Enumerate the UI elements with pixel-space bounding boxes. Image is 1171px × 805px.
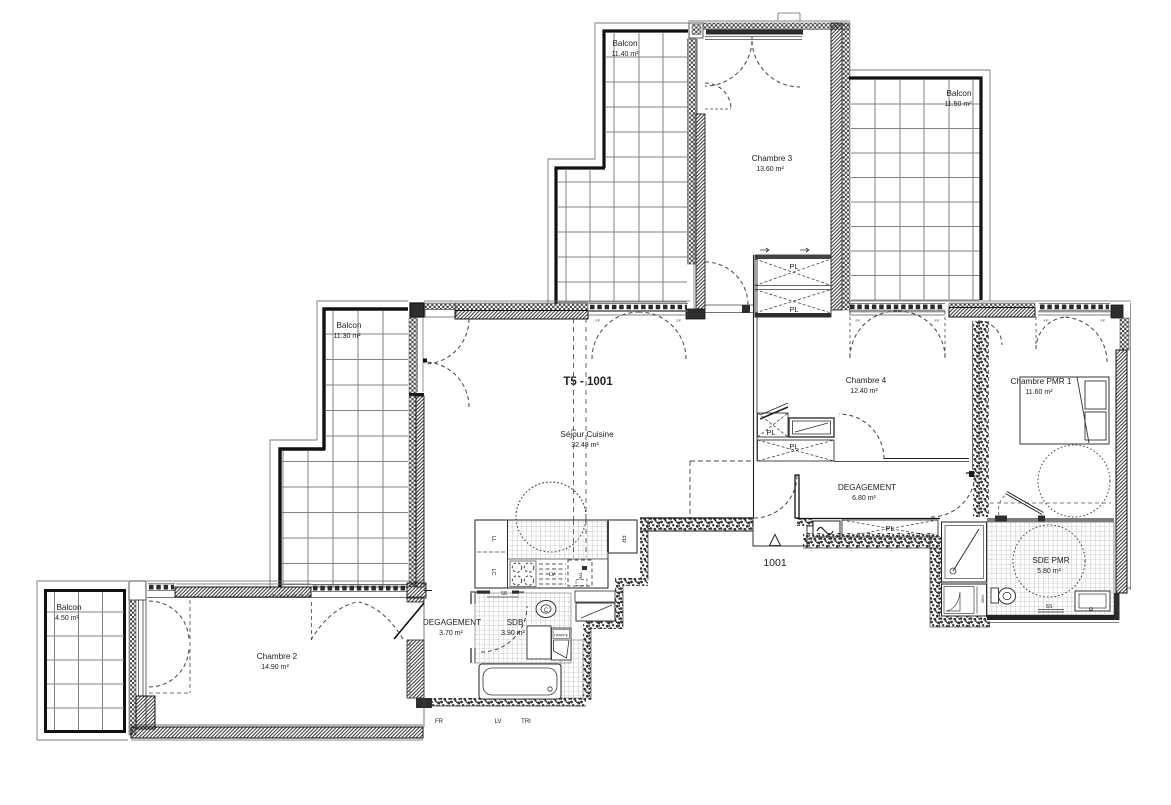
svg-text:Balcon: Balcon — [336, 321, 361, 330]
svg-text:Chambre PMR 1: Chambre PMR 1 — [1011, 377, 1072, 386]
svg-text:1001: 1001 — [763, 557, 787, 569]
svg-text:TRI: TRI — [578, 572, 583, 579]
svg-text:TRI: TRI — [521, 719, 531, 725]
svg-text:11.60 m²: 11.60 m² — [1025, 389, 1053, 396]
svg-text:SDB: SDB — [507, 618, 524, 627]
svg-text:13.60 m²: 13.60 m² — [756, 166, 784, 173]
svg-text:6.80 m²: 6.80 m² — [852, 495, 876, 502]
svg-text:LV: LV — [495, 719, 502, 725]
svg-text:PL: PL — [885, 524, 894, 533]
svg-text:FR: FR — [620, 535, 626, 542]
svg-text:Chambre 4: Chambre 4 — [846, 376, 887, 385]
svg-text:FF: FF — [856, 318, 861, 323]
svg-text:DEGAGEMENT: DEGAGEMENT — [423, 618, 481, 627]
svg-text:11.50 m²: 11.50 m² — [944, 101, 972, 108]
svg-text:FF: FF — [677, 318, 682, 323]
svg-text:3.70 m²: 3.70 m² — [439, 630, 463, 637]
svg-text:5.80 m²: 5.80 m² — [1037, 568, 1061, 575]
svg-text:Balcon: Balcon — [946, 89, 971, 98]
svg-text:11.30 m²: 11.30 m² — [333, 333, 361, 340]
svg-text:4.50 m²: 4.50 m² — [55, 615, 79, 622]
svg-text:VMC: VMC — [981, 595, 986, 604]
svg-text:PL: PL — [789, 442, 798, 451]
svg-text:PL: PL — [789, 262, 798, 271]
svg-text:3.90 m²: 3.90 m² — [501, 630, 525, 637]
svg-text:12.40 m²: 12.40 m² — [850, 388, 878, 395]
svg-text:58: 58 — [501, 591, 507, 597]
svg-text:T5 - 1001: T5 - 1001 — [563, 376, 613, 388]
svg-text:TRAPPE: TRAPPE — [554, 634, 569, 638]
svg-text:SDE PMR: SDE PMR — [1032, 556, 1069, 565]
svg-text:FF: FF — [935, 318, 940, 323]
svg-text:FR: FR — [435, 719, 444, 725]
svg-text:LL: LL — [490, 536, 496, 542]
svg-text:LV: LV — [549, 572, 555, 578]
svg-text:Chambre 3: Chambre 3 — [752, 154, 793, 163]
svg-text:PL: PL — [789, 305, 798, 314]
svg-text:FF: FF — [1101, 318, 1106, 323]
svg-text:DEGAGEMENT: DEGAGEMENT — [838, 483, 896, 492]
svg-text:FF: FF — [596, 318, 601, 323]
svg-text:Séjour Cuisine: Séjour Cuisine — [560, 430, 614, 439]
svg-text:LC: LC — [490, 568, 496, 575]
svg-text:Balcon: Balcon — [56, 603, 81, 612]
svg-text:Chambre 2: Chambre 2 — [257, 652, 298, 661]
svg-text:11.40 m²: 11.40 m² — [611, 51, 639, 58]
svg-text:Balcon: Balcon — [612, 39, 637, 48]
svg-text:C: C — [544, 608, 549, 614]
svg-text:FF: FF — [1044, 318, 1049, 323]
svg-text:PL: PL — [766, 428, 775, 437]
svg-text:32.48 m²: 32.48 m² — [571, 442, 599, 449]
svg-text:14.90 m²: 14.90 m² — [261, 664, 289, 671]
